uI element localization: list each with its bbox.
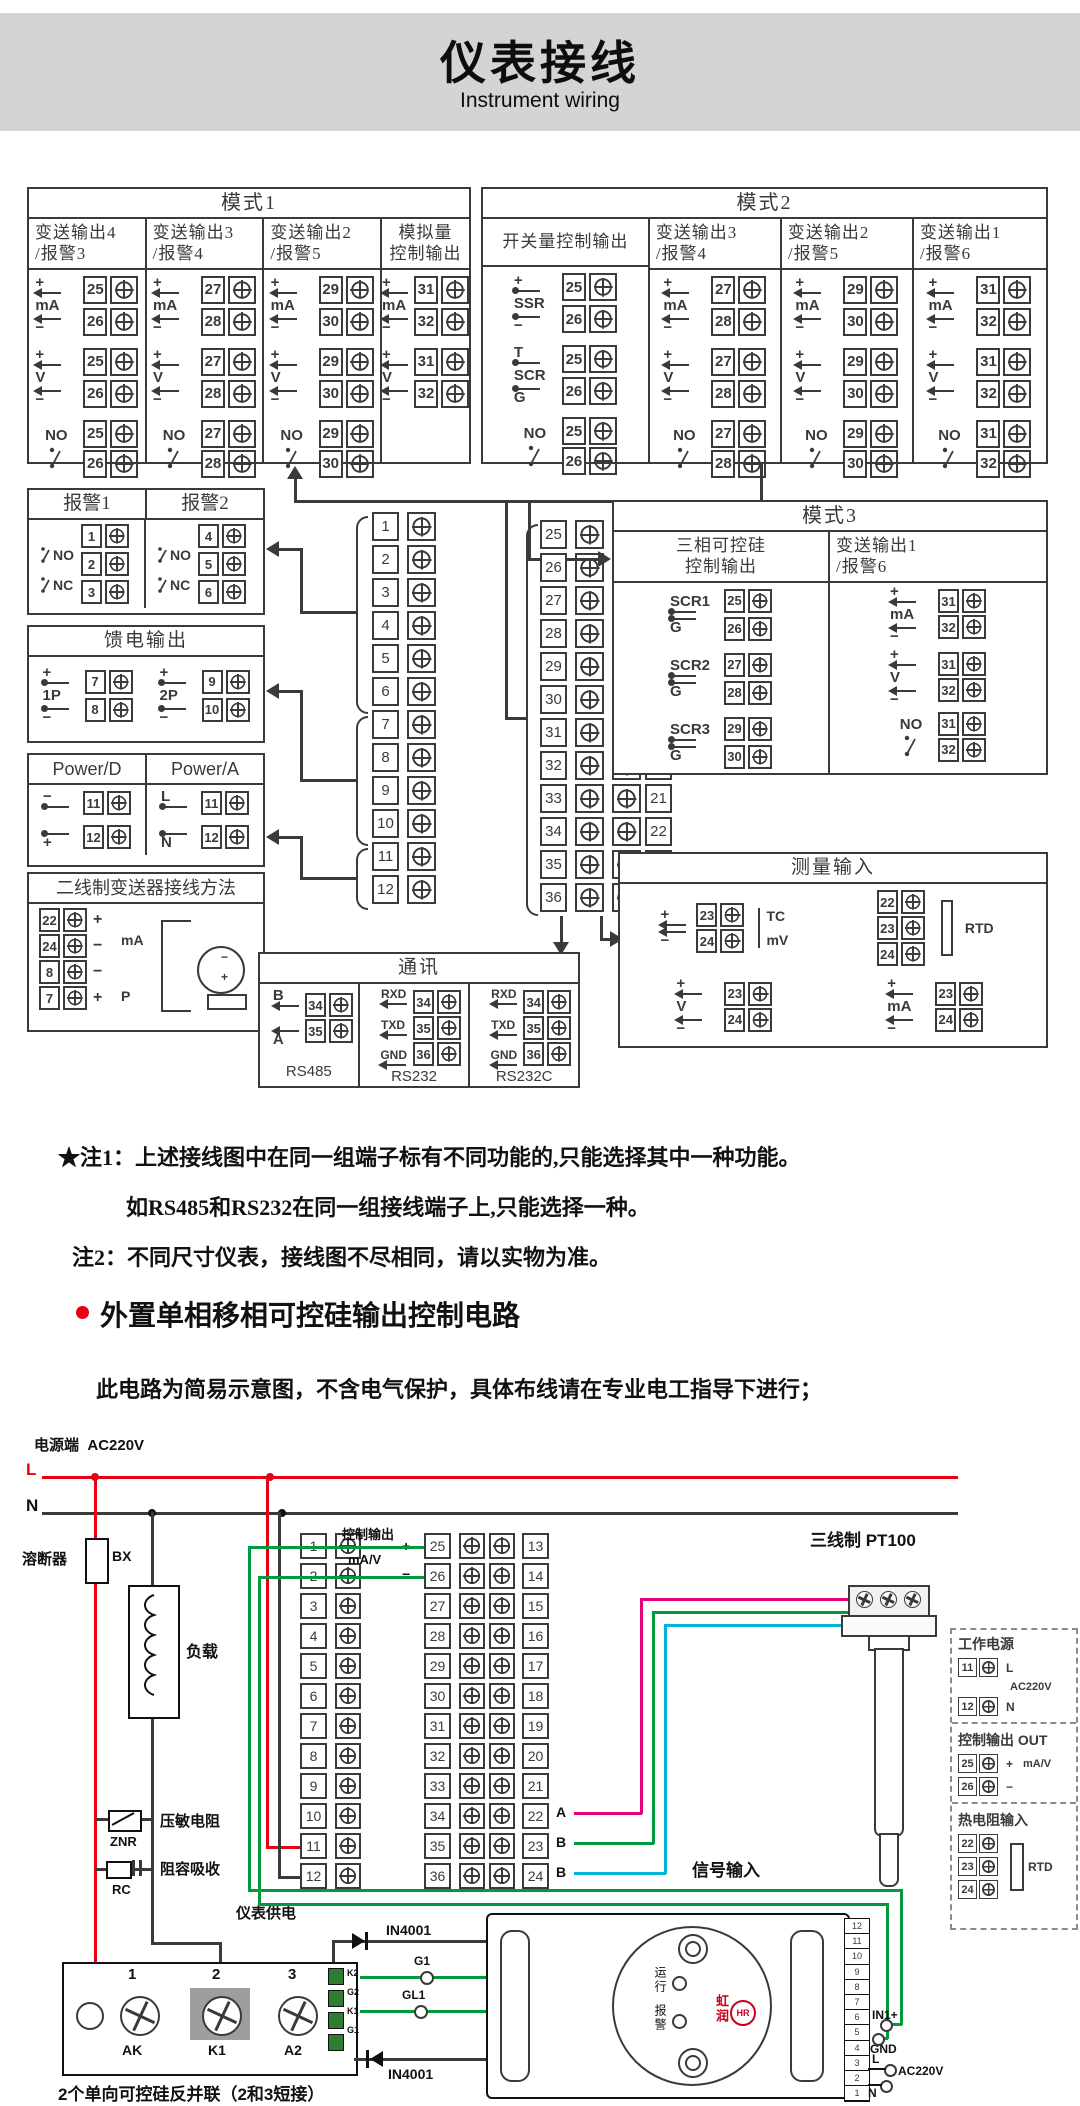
strip-terminal: 10 (372, 809, 399, 838)
screw-terminal-icon (228, 450, 256, 478)
plus: + (35, 277, 61, 296)
rtd-wire-b1 (574, 1842, 654, 1845)
comm-title: 通讯 (260, 954, 578, 984)
screw-terminal-icon (226, 698, 250, 722)
signal-input-label: 信号输入 (692, 1856, 760, 1881)
terminal: 32 (976, 308, 1031, 336)
line-l: L (161, 791, 187, 810)
wire-arrow-left-icon (382, 318, 408, 320)
wire-dot-icon (161, 833, 187, 835)
board-connector-left (500, 1930, 530, 2082)
terminal: 24 (724, 1008, 772, 1032)
ac-text: AC220V (87, 1437, 144, 1454)
rtd-wire-b2 (664, 1624, 852, 1627)
mini-terminal: 24 (958, 1880, 998, 1899)
plus: + (890, 649, 916, 668)
board-terminal: 6 (845, 2010, 869, 2025)
v-block: +V−2526 (35, 348, 138, 408)
scr3-label: SCR3 (670, 724, 710, 743)
measure-title: 测量输入 (620, 854, 1046, 884)
minus: − (663, 315, 689, 334)
plus: + (43, 667, 69, 686)
transmitter-plus: + (221, 970, 228, 984)
ma-block: +mA−2728 (663, 276, 766, 336)
ma-block: +mA−2526 (35, 276, 138, 336)
terminal: 10 (202, 698, 250, 722)
two-wire-title: 二线制变送器接线方法 (29, 874, 263, 904)
minus: − (271, 387, 297, 406)
v-block: +V−2930 (271, 348, 374, 408)
ma-block: +mA−2728 (153, 276, 256, 336)
screw-terminal-icon (110, 450, 138, 478)
wire-dot-icon (670, 682, 696, 684)
screw-terminal-icon (226, 670, 250, 694)
terminal: 24 (935, 1008, 983, 1032)
ctrl-out-label: 控制输出 (342, 1524, 394, 1543)
rtd-resistor-icon (1010, 1843, 1024, 1891)
plus: + (663, 349, 689, 368)
screw-terminal-icon (901, 916, 925, 940)
screw-terminal-icon (979, 1754, 998, 1773)
note-1b: 如RS485和RS232在同一组接线端子上,只能选择一种。 (126, 1190, 650, 1222)
rtd-wire-b1 (652, 1611, 655, 1844)
screw-terminal-icon (738, 420, 766, 448)
wire-arrow-left-icon (660, 924, 686, 926)
rs485-name: RS485 (286, 1063, 332, 1080)
ctrl-minus: − (402, 1566, 410, 1582)
znr-label: 压敏电阻 (160, 1810, 220, 1831)
wire-arrow-left-icon (890, 690, 916, 692)
plus: + (663, 277, 689, 296)
mode2-box: 模式2 开关量控制输出 +SSR−2526 TSCRG2526 NO2526 变… (481, 187, 1048, 464)
screw-terminal-icon (962, 738, 986, 762)
fuse-code: BX (112, 1548, 131, 1564)
minus-mark: − (1006, 1780, 1013, 1794)
rtd-wire-b2 (664, 1624, 667, 1874)
terminal: 31 (938, 712, 986, 736)
mode1-columns: 变送输出4/报警3 +mA−2526 +V−2526 NO2526 变送输出3/… (29, 219, 469, 462)
no-label: NO (163, 427, 186, 444)
strip-terminal: 29 (540, 652, 567, 681)
hdr-line2: 控制输出 (685, 557, 757, 576)
hdr-line2: /报警6 (920, 244, 971, 263)
wire-arrow-left-icon (663, 390, 689, 392)
diode-wire (332, 1942, 335, 1962)
terminal: 31 (938, 652, 986, 676)
strip-terminal: 25 (540, 520, 567, 549)
screw-terminal-icon (738, 380, 766, 408)
gate-label: G2 (347, 1987, 359, 1997)
mini-terminal: 22 (958, 1834, 998, 1853)
strip-terminal: 31 (424, 1713, 451, 1739)
wire-a-label: A (556, 1804, 566, 1820)
plus: + (271, 349, 297, 368)
terminal: 7 (85, 670, 133, 694)
terminal: 32 (938, 678, 986, 702)
mini-terminal: 11L (958, 1658, 1076, 1677)
ma-label: mA (928, 297, 952, 314)
screw-terminal-icon (437, 1042, 461, 1066)
alarm1-chain: 1 NO 2 NC 3 (35, 524, 144, 604)
wire-arrow-left-icon (382, 292, 408, 294)
terminal: 29 (724, 717, 772, 741)
diode-bar (365, 1932, 368, 1950)
terminal: 25 (562, 417, 617, 445)
screw-terminal-icon (329, 1019, 353, 1043)
mini-terminal: 26− (958, 1777, 1076, 1796)
switch-icon (807, 445, 825, 471)
connector-line (300, 779, 356, 782)
strip-terminal: 30 (540, 685, 567, 714)
screw-terminal-icon (63, 960, 87, 984)
terminal: 27 (711, 348, 766, 376)
connector-line (600, 916, 603, 940)
screw-terminal-icon (738, 348, 766, 376)
wire-arrow-left-icon (273, 1005, 299, 1007)
hdr-line2: /报警3 (35, 244, 86, 263)
strip-terminal: 31 (540, 718, 567, 747)
group-brace (356, 848, 368, 910)
screw-terminal-icon (1003, 276, 1031, 304)
tc-label: TC (766, 908, 788, 924)
pt100-label: 三线制 PT100 (810, 1526, 916, 1551)
ma-label: mA (663, 297, 687, 314)
terminal: 30 (319, 380, 374, 408)
instrument-wiring-page: 仪表接线 Instrument wiring 模式1 变送输出4/报警3 +mA… (0, 0, 1080, 2106)
scr-num-1: 1 (128, 1966, 136, 1983)
screw-terminal-icon (437, 990, 461, 1014)
strip-terminal: 13 (522, 1533, 549, 1559)
terminal: 11 (83, 791, 131, 815)
terminal: 9 (202, 670, 250, 694)
screw-terminal-icon (228, 308, 256, 336)
scr-label: SCR (514, 367, 546, 384)
ma-block: +mA−2324 (887, 978, 983, 1035)
terminal: 31 (414, 276, 469, 304)
mav-mark: mA/V (1023, 1758, 1051, 1770)
scr-block: TSCRG2526 (514, 345, 617, 405)
plus: + (928, 349, 954, 368)
connector-line (300, 877, 356, 880)
minus: − (676, 1016, 702, 1035)
strip-terminal: 26 (424, 1563, 451, 1589)
wire-arrow-left-icon (273, 1030, 299, 1032)
wire-arrow-left-icon (35, 318, 61, 320)
green-wire (900, 1889, 903, 2025)
screw-terminal-icon (63, 986, 87, 1010)
board-terminal-strip: 121110987654321 (844, 1918, 870, 2102)
screw-terminal-icon (738, 308, 766, 336)
screw-terminal-icon (441, 380, 469, 408)
rs485-rows: BA3435 (265, 990, 353, 1046)
screw-terminal-icon (748, 589, 772, 613)
v-label: V (795, 369, 805, 386)
terminal: 32 (938, 615, 986, 639)
screw-terminal-icon (222, 524, 246, 548)
wire-b2-label: B (556, 1864, 566, 1880)
terminal: 25 (83, 420, 138, 448)
ma-block: +mA−2930 (795, 276, 898, 336)
connector-line (294, 478, 297, 502)
line-l-label: L (26, 1460, 36, 1480)
line-n: N (161, 830, 187, 849)
screw-terminal-icon (979, 1658, 998, 1677)
terminal: 36 (523, 1042, 571, 1066)
hdr-line2: 控制输出 (390, 244, 462, 263)
terminal: 25 (724, 589, 772, 613)
strip-terminal: 26 (540, 553, 567, 582)
wire-arrow-left-icon (153, 390, 179, 392)
two-wire-terms: 22+ 24− 8− 7+ (39, 908, 102, 1010)
no-block: NO2526 (35, 420, 138, 478)
screw-terminal-icon (589, 305, 617, 333)
screw-terminal-icon (346, 276, 374, 304)
no-block: NO2930 (795, 420, 898, 478)
screw-terminal-icon (979, 1697, 998, 1716)
screw-terminal-icon (437, 1016, 461, 1040)
terminal: 27 (201, 276, 256, 304)
wire-arrow-left-icon (382, 364, 408, 366)
rtd-resistor-icon (941, 900, 953, 956)
terminal: 28 (711, 450, 766, 478)
panel-rtd-terms: 22 23 24 RTD (958, 1834, 1076, 1899)
wire-arrow-left-icon (795, 318, 821, 320)
connector-line (300, 611, 356, 614)
screw-terminal-icon (870, 348, 898, 376)
mode3-out-col: 变送输出1/报警6 +mA−3132 +V−3132 NO3132 (830, 532, 1046, 773)
strip-terminal: 22 (522, 1803, 549, 1829)
screw-terminal-icon (107, 825, 131, 849)
terminal: 34 (305, 993, 353, 1017)
terminal: 1 (81, 524, 144, 548)
hdr-line2: /报警6 (836, 557, 887, 576)
board-terminal: 9 (845, 1965, 869, 1980)
minus: − (35, 387, 61, 406)
mini-terminal: 23 (958, 1857, 998, 1876)
wire-arrow-left-icon (795, 292, 821, 294)
wire-arrow-left-icon (663, 292, 689, 294)
minus: − (43, 705, 69, 724)
rtd-wire-b1 (652, 1611, 852, 1614)
minus: − (795, 387, 821, 406)
load-wire (219, 1942, 222, 1962)
scr-terminal-icon (278, 1996, 318, 2036)
rs232-name: RS232 (391, 1068, 437, 1085)
arrow-left-icon (266, 683, 279, 699)
strip-terminal: 12 (300, 1863, 327, 1889)
wire-dot-icon (514, 290, 540, 292)
hdr-line2: /报警4 (153, 244, 204, 263)
screw-terminal-icon (63, 934, 87, 958)
cap-plate (139, 1860, 142, 1876)
ac-mark: AC220V (1010, 1681, 1076, 1693)
ma-label: mA (121, 932, 144, 948)
rtd-mark: RTD (1028, 1860, 1053, 1874)
feed-title: 馈电输出 (29, 627, 263, 657)
gate-cell (328, 1990, 344, 2007)
minus: − (160, 705, 186, 724)
transmitter-base (207, 994, 247, 996)
run-label: 运行 (652, 1966, 669, 1994)
rc-code: RC (112, 1882, 131, 1897)
alarm-content: 1 NO 2 NC 3 4 NO 5 NC 6 (29, 520, 263, 608)
wire-arrow-left-icon (271, 318, 297, 320)
terminal: 25 (562, 273, 617, 301)
screw-terminal-icon (105, 524, 129, 548)
v-label: V (663, 369, 673, 386)
plus: + (153, 277, 179, 296)
terminal: 6 (198, 580, 263, 604)
strip-terminal: 27 (424, 1593, 451, 1619)
strip-terminal: 7 (372, 710, 399, 739)
power-headers: Power/D Power/A (29, 755, 263, 785)
switch-icon (165, 445, 183, 471)
alarm-led-icon (672, 2014, 687, 2029)
col-header: 变送输出1/报警6 (830, 532, 1046, 583)
strip-terminal: 12 (372, 875, 399, 904)
green-wire (248, 1546, 251, 1891)
stub-circle (414, 2005, 428, 2019)
board-terminal: 3 (845, 2056, 869, 2071)
board-terminal: 10 (845, 1949, 869, 1964)
coil-icon (132, 1587, 176, 1713)
scr-t: T (514, 347, 540, 366)
strip-terminal: 23 (522, 1833, 549, 1859)
col-header: 变送输出3/报警4 (147, 219, 263, 270)
terminal: 30 (843, 380, 898, 408)
screw-terminal-icon (228, 420, 256, 448)
rtd-label: RTD (965, 920, 994, 936)
no-label: NO (938, 427, 961, 444)
v-block: +V−2728 (153, 348, 256, 408)
hdr-line1: 变送输出2 (788, 223, 870, 242)
terminal: 32 (414, 308, 469, 336)
connector-line (505, 500, 508, 719)
no-block: NO2728 (153, 420, 256, 478)
plus: + (514, 275, 540, 294)
screw-terminal-icon (979, 1834, 998, 1853)
n-mark: N (1006, 1700, 1015, 1714)
hdr-line2: /报警5 (788, 244, 839, 263)
board-terminal: 1 (845, 2086, 869, 2101)
rtd-wire-a (640, 1598, 643, 1814)
panel-divider (952, 1802, 1076, 1804)
terminal: 30 (319, 308, 374, 336)
mode1-col-3: 变送输出2/报警5 +mA−2930 +V−2930 NO2930 (264, 219, 382, 462)
terminal: 35 (413, 1016, 461, 1040)
alarm-led-label: 报警 (652, 2004, 669, 2032)
terminal: 31 (976, 420, 1031, 448)
scr-num-3: 3 (288, 1966, 296, 1983)
plus: + (153, 349, 179, 368)
plus: + (382, 277, 408, 296)
minus: − (93, 963, 102, 981)
minus: − (153, 387, 179, 406)
terminal: 25 (562, 345, 617, 373)
stub-circle (880, 2080, 893, 2093)
minus: − (890, 624, 916, 643)
screw-terminal-icon (110, 348, 138, 376)
v-label: V (153, 369, 163, 386)
no-block: NO3132 (890, 712, 986, 762)
board-ac-label: AC220V (898, 2064, 943, 2078)
wire-dot-icon (160, 708, 186, 710)
board-terminal: 2 (845, 2071, 869, 2086)
ma-block: +mA−2930 (271, 276, 374, 336)
two-wire-content: 22+ 24− 8− 7+ mA P − + (29, 904, 263, 1028)
alarm1-col: 1 NO 2 NC 3 (29, 520, 146, 608)
screw-terminal-icon (1003, 348, 1031, 376)
strip-terminal: 7 (300, 1713, 327, 1739)
wire-dot-icon (670, 611, 696, 613)
strip-terminal: 28 (540, 619, 567, 648)
terminal: 36 (413, 1042, 461, 1066)
board-l-label: L (872, 2052, 879, 2066)
source-label: 电源端 AC220V (34, 1434, 144, 1455)
terminal: 31 (414, 348, 469, 376)
board-terminal: 4 (845, 2041, 869, 2056)
terminal: 29 (843, 420, 898, 448)
terminal: 29 (319, 276, 374, 304)
wire-arrow-left-icon (663, 318, 689, 320)
scr-lab-k1: K1 (208, 2042, 226, 2058)
screw-terminal-icon (748, 745, 772, 769)
strip-terminal: 9 (300, 1773, 327, 1799)
screw-terminal-icon (589, 417, 617, 445)
connector-line (278, 836, 302, 839)
board-terminal: 5 (845, 2025, 869, 2040)
strip-terminal: 18 (522, 1683, 549, 1709)
screw-terminal-icon (870, 276, 898, 304)
terminal: 26 (562, 377, 617, 405)
switch-icon (526, 443, 544, 469)
screw-terminal-icon (959, 982, 983, 1006)
gate-label: G (670, 743, 696, 762)
wire-arrow-left-icon (795, 390, 821, 392)
bullet-icon (76, 1306, 89, 1319)
switch-icon (39, 546, 51, 564)
screw-terminal-icon (222, 580, 246, 604)
diode-icon (370, 2051, 383, 2067)
group-label: 2P (160, 687, 178, 704)
screw-terminal-icon (346, 308, 374, 336)
connector-line (300, 548, 303, 613)
comm-rs232c: RXDTXDGND343536 RS232C (470, 984, 578, 1086)
alarm2-chain: 4 NO 5 NC 6 (152, 524, 263, 604)
strip-terminal: 28 (424, 1623, 451, 1649)
minus: − (382, 315, 408, 334)
v-block: +V−3132 (890, 649, 986, 706)
strip-terminal: 34 (540, 817, 567, 846)
remote-panel: 工作电源 11L AC220V 12N 控制输出 OUT 25+mA/V 26−… (950, 1628, 1078, 1930)
no-label: NO (673, 427, 696, 444)
scr1-label: SCR1 (670, 596, 710, 615)
wire-dot-icon (43, 806, 69, 808)
comm-box: 通讯 BA3435 RS485 RXDTXDGND343536 RS232 RX… (258, 952, 580, 1088)
group-brace (356, 516, 368, 714)
wire-arrow-left-icon (890, 664, 916, 666)
screw-terminal-icon (225, 825, 249, 849)
minus: − (153, 315, 179, 334)
diode-bar (366, 2050, 369, 2068)
board-n-label: N (868, 2086, 877, 2100)
ma-label: mA (887, 998, 911, 1015)
wire-arrow-left-icon (153, 292, 179, 294)
no-label: NO (524, 425, 547, 442)
terminal: 23 (724, 982, 772, 1006)
ma-label: mA (890, 606, 914, 623)
terminal: 12 (201, 825, 249, 849)
